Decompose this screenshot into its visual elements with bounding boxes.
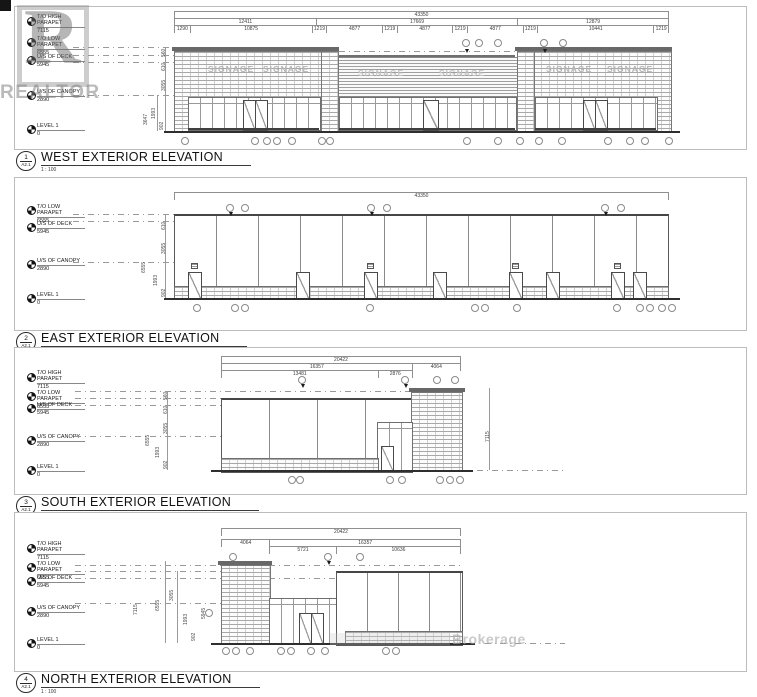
brick-tower [221, 565, 271, 645]
view-title-text: SOUTH EXTERIOR ELEVATION [41, 496, 259, 511]
north-elevation-panel: T/O HIGH PARAPET7115 T/O LOW PARAPET6555… [14, 512, 747, 672]
dimension-line [157, 95, 158, 131]
entry-door [255, 100, 268, 131]
keynote-bubble [296, 476, 304, 484]
keynote-bubble [481, 304, 489, 312]
east-elevation-panel: T/O LOW PARAPET6555 U/S OF DECK5945 U/S … [14, 177, 747, 331]
keynote-bubble [636, 304, 644, 312]
datum-icon [27, 577, 36, 586]
keynote-bubble [181, 137, 189, 145]
service-door [509, 272, 523, 300]
service-door [296, 272, 310, 300]
level-line [75, 398, 221, 399]
keynote-bubble [451, 376, 459, 384]
signage-text: SIGNAGE [358, 69, 404, 78]
level-label-canopy: U/S OF CANOPY2890 [37, 258, 85, 272]
keynote-bubble [232, 647, 240, 655]
datum-icon [27, 373, 36, 382]
keynote-bubble [401, 376, 409, 384]
keynote-bubble [222, 647, 230, 655]
storefront-sill [535, 128, 656, 130]
vertical-dim: 6555 [155, 600, 161, 611]
keynote-bubble [246, 647, 254, 655]
louver-icon [191, 263, 198, 269]
vertical-dim: 560 [163, 392, 169, 400]
keynote-bubble [641, 137, 649, 145]
keynote-bubble [241, 304, 249, 312]
level-label-canopy: U/S OF CANOPY2890 [37, 605, 85, 619]
keynote-bubble [229, 553, 237, 561]
vertical-dim: 3055 [161, 243, 167, 254]
storefront-sill [339, 128, 515, 130]
level-line [75, 571, 221, 572]
keynote-bubble [658, 304, 666, 312]
leader-arrow-icon [229, 212, 233, 216]
entry-door [311, 613, 324, 645]
entry-door [381, 446, 394, 472]
keynote-bubble [604, 137, 612, 145]
vertical-dim: 7115 [485, 431, 491, 442]
service-door [433, 272, 447, 300]
keynote-bubble [392, 647, 400, 655]
vertical-dim: 902 [159, 122, 165, 130]
level-line [73, 221, 174, 222]
level-line [75, 565, 221, 566]
keynote-bubble [386, 476, 394, 484]
keynote-bubble [613, 304, 621, 312]
level-line [73, 214, 174, 215]
signage-text: SIGNAGE [208, 65, 254, 74]
view-title-text: EAST EXTERIOR ELEVATION [41, 332, 247, 347]
view-title-west: 1A2.1 WEST EXTERIOR ELEVATION1 : 100 [16, 151, 251, 173]
keynote-bubble [668, 304, 676, 312]
datum-icon [27, 639, 36, 648]
keynote-bubble [463, 137, 471, 145]
level-label-level1: LEVEL 10 [37, 123, 85, 137]
keynote-bubble [540, 39, 548, 47]
entry-door [595, 100, 608, 131]
level-line [269, 565, 461, 566]
view-title-north: 4A2.1 NORTH EXTERIOR ELEVATION1 : 100 [16, 673, 260, 695]
keynote-bubble [287, 647, 295, 655]
keynote-bubble [307, 647, 315, 655]
keynote-bubble [513, 304, 521, 312]
signage-text: SIGNAGE [263, 65, 309, 74]
signage-text: SIGNAGE [546, 65, 592, 74]
keynote-bubble [646, 304, 654, 312]
level-line [75, 603, 221, 604]
signage-text: SIGNAGE [607, 65, 653, 74]
keynote-bubble [382, 647, 390, 655]
vertical-dim: 560 [161, 49, 167, 57]
keynote-bubble [494, 137, 502, 145]
keynote-bubble [446, 476, 454, 484]
vertical-dim: 1993 [183, 614, 189, 625]
keynote-bubble [617, 204, 625, 212]
keynote-bubble [326, 137, 334, 145]
keynote-bubble [263, 137, 271, 145]
leader-arrow-icon [301, 384, 305, 388]
view-scale: 1 : 100 [41, 167, 251, 173]
entry-door [423, 100, 439, 131]
keynote-bubble [251, 137, 259, 145]
realtor-logo-letter: R [24, 0, 80, 78]
level-line [339, 51, 515, 52]
datum-icon [27, 294, 36, 303]
vertical-dim: 6555 [145, 435, 151, 446]
keynote-bubble [475, 39, 483, 47]
datum-icon [27, 223, 36, 232]
level-line [73, 262, 174, 263]
keynote-bubble [366, 304, 374, 312]
keynote-bubble [298, 376, 306, 384]
west-elevation-panel: T/O HIGH PARAPET7115 T/O LOW PARAPET6555… [14, 6, 747, 150]
keynote-bubble [471, 304, 479, 312]
keynote-bubble [324, 553, 332, 561]
vertical-dim: 3055 [163, 423, 169, 434]
level-label-high-parapet: T/O HIGH PARAPET7115 [37, 541, 85, 561]
dimension-line [489, 388, 490, 470]
ground-line [164, 298, 680, 300]
keynote-bubble [288, 476, 296, 484]
vertical-dim: 3055 [169, 590, 175, 601]
keynote-bubble [626, 137, 634, 145]
keynote-bubble [367, 204, 375, 212]
datum-icon [27, 544, 36, 553]
datum-icon [27, 206, 36, 215]
keynote-bubble [436, 476, 444, 484]
brick-pier [517, 51, 535, 133]
vertical-dim: 902 [191, 633, 197, 641]
south-elevation-panel: T/O HIGH PARAPET7115 T/O LOW PARAPET6555… [14, 347, 747, 495]
ground-line [164, 131, 680, 133]
dimension-row-total: 43350 [174, 192, 669, 200]
keynote-bubble [601, 204, 609, 212]
level-label-level1: LEVEL 10 [37, 292, 85, 306]
level-label-level1: LEVEL 10 [37, 637, 85, 651]
brick-pier [321, 51, 339, 133]
keynote-bubble [398, 476, 406, 484]
vertical-dim: 3055 [161, 80, 167, 91]
vertical-dim: 1993 [151, 108, 157, 119]
leader-arrow-icon [543, 49, 547, 53]
vertical-dim: 1993 [153, 275, 159, 286]
datum-icon [27, 466, 36, 475]
service-door [611, 272, 625, 300]
view-number-bubble: 1A2.1 [16, 151, 36, 171]
keynote-bubble [226, 204, 234, 212]
dimension-row-total: 20422 [221, 528, 461, 536]
vertical-dim: 902 [163, 461, 169, 469]
keynote-bubble [321, 647, 329, 655]
vertical-dim: 610 [161, 63, 167, 71]
louver-icon [367, 263, 374, 269]
dimension-line [177, 571, 178, 643]
vertical-dim: 7115 [133, 604, 139, 615]
dimension-row-3: 134812876 [221, 370, 413, 378]
grade-line [477, 470, 567, 471]
keynote-bubble [535, 137, 543, 145]
keynote-bubble [558, 137, 566, 145]
datum-icon [27, 436, 36, 445]
keynote-bubble [318, 137, 326, 145]
leader-arrow-icon [465, 49, 469, 53]
vertical-dim: 6555 [141, 262, 147, 273]
keynote-bubble [241, 204, 249, 212]
storefront-sill [188, 128, 319, 130]
drawing-sheet: T/O HIGH PARAPET7115 T/O LOW PARAPET6555… [0, 0, 757, 697]
service-door [546, 272, 560, 300]
view-scale: 1 : 100 [41, 689, 260, 695]
keynote-bubble [205, 609, 213, 617]
level-label-level1: LEVEL 10 [37, 464, 85, 478]
keynote-bubble [433, 376, 441, 384]
datum-icon [27, 404, 36, 413]
vertical-dim: 3647 [143, 114, 149, 125]
level-label-high-parapet: T/O HIGH PARAPET7115 [37, 370, 85, 390]
keynote-bubble [288, 137, 296, 145]
signage-text: SIGNAGE [439, 69, 485, 78]
level-label-deck: U/S OF DECK5945 [37, 221, 85, 235]
level-line [75, 391, 411, 392]
dimension-line [165, 561, 166, 643]
service-door [364, 272, 378, 300]
keynote-bubble [559, 39, 567, 47]
louver-icon [614, 263, 621, 269]
keynote-bubble [273, 137, 281, 145]
brick-tower [411, 392, 463, 472]
keynote-bubble [462, 39, 470, 47]
louver-icon [512, 263, 519, 269]
leader-arrow-icon [327, 561, 331, 565]
keynote-bubble [516, 137, 524, 145]
level-line [75, 578, 221, 579]
leader-arrow-icon [404, 384, 408, 388]
keynote-bubble [665, 137, 673, 145]
keynote-bubble [193, 304, 201, 312]
view-title-text: NORTH EXTERIOR ELEVATION [41, 673, 260, 688]
realtor-watermark-text: REALTOR [0, 82, 101, 104]
view-number-bubble: 4A2.1 [16, 673, 36, 693]
service-door [188, 272, 202, 300]
view-title-text: WEST EXTERIOR ELEVATION [41, 151, 251, 166]
vertical-dim: 1993 [155, 447, 161, 458]
datum-icon [27, 260, 36, 269]
keynote-bubble [231, 304, 239, 312]
keynote-bubble [456, 476, 464, 484]
watermark-smudge [330, 633, 450, 645]
ground-line [211, 470, 473, 472]
leader-arrow-icon [604, 212, 608, 216]
keynote-bubble [494, 39, 502, 47]
dimension-row-3: 572110636 [269, 546, 461, 554]
datum-icon [27, 563, 36, 572]
corner-mark [0, 0, 11, 11]
dimension-row-3: 1290108751219487712194877121948771219104… [174, 25, 669, 33]
vertical-dim: 610 [161, 222, 167, 230]
datum-icon [27, 125, 36, 134]
service-door [633, 272, 647, 300]
vertical-dim: 902 [161, 289, 167, 297]
datum-icon [27, 607, 36, 616]
leader-arrow-icon [370, 212, 374, 216]
vertical-dim: 610 [163, 406, 169, 414]
keynote-bubble [277, 647, 285, 655]
brokerage-watermark-text: Brokerage [452, 631, 526, 647]
datum-icon [27, 392, 36, 401]
keynote-bubble [356, 553, 364, 561]
keynote-bubble [383, 204, 391, 212]
